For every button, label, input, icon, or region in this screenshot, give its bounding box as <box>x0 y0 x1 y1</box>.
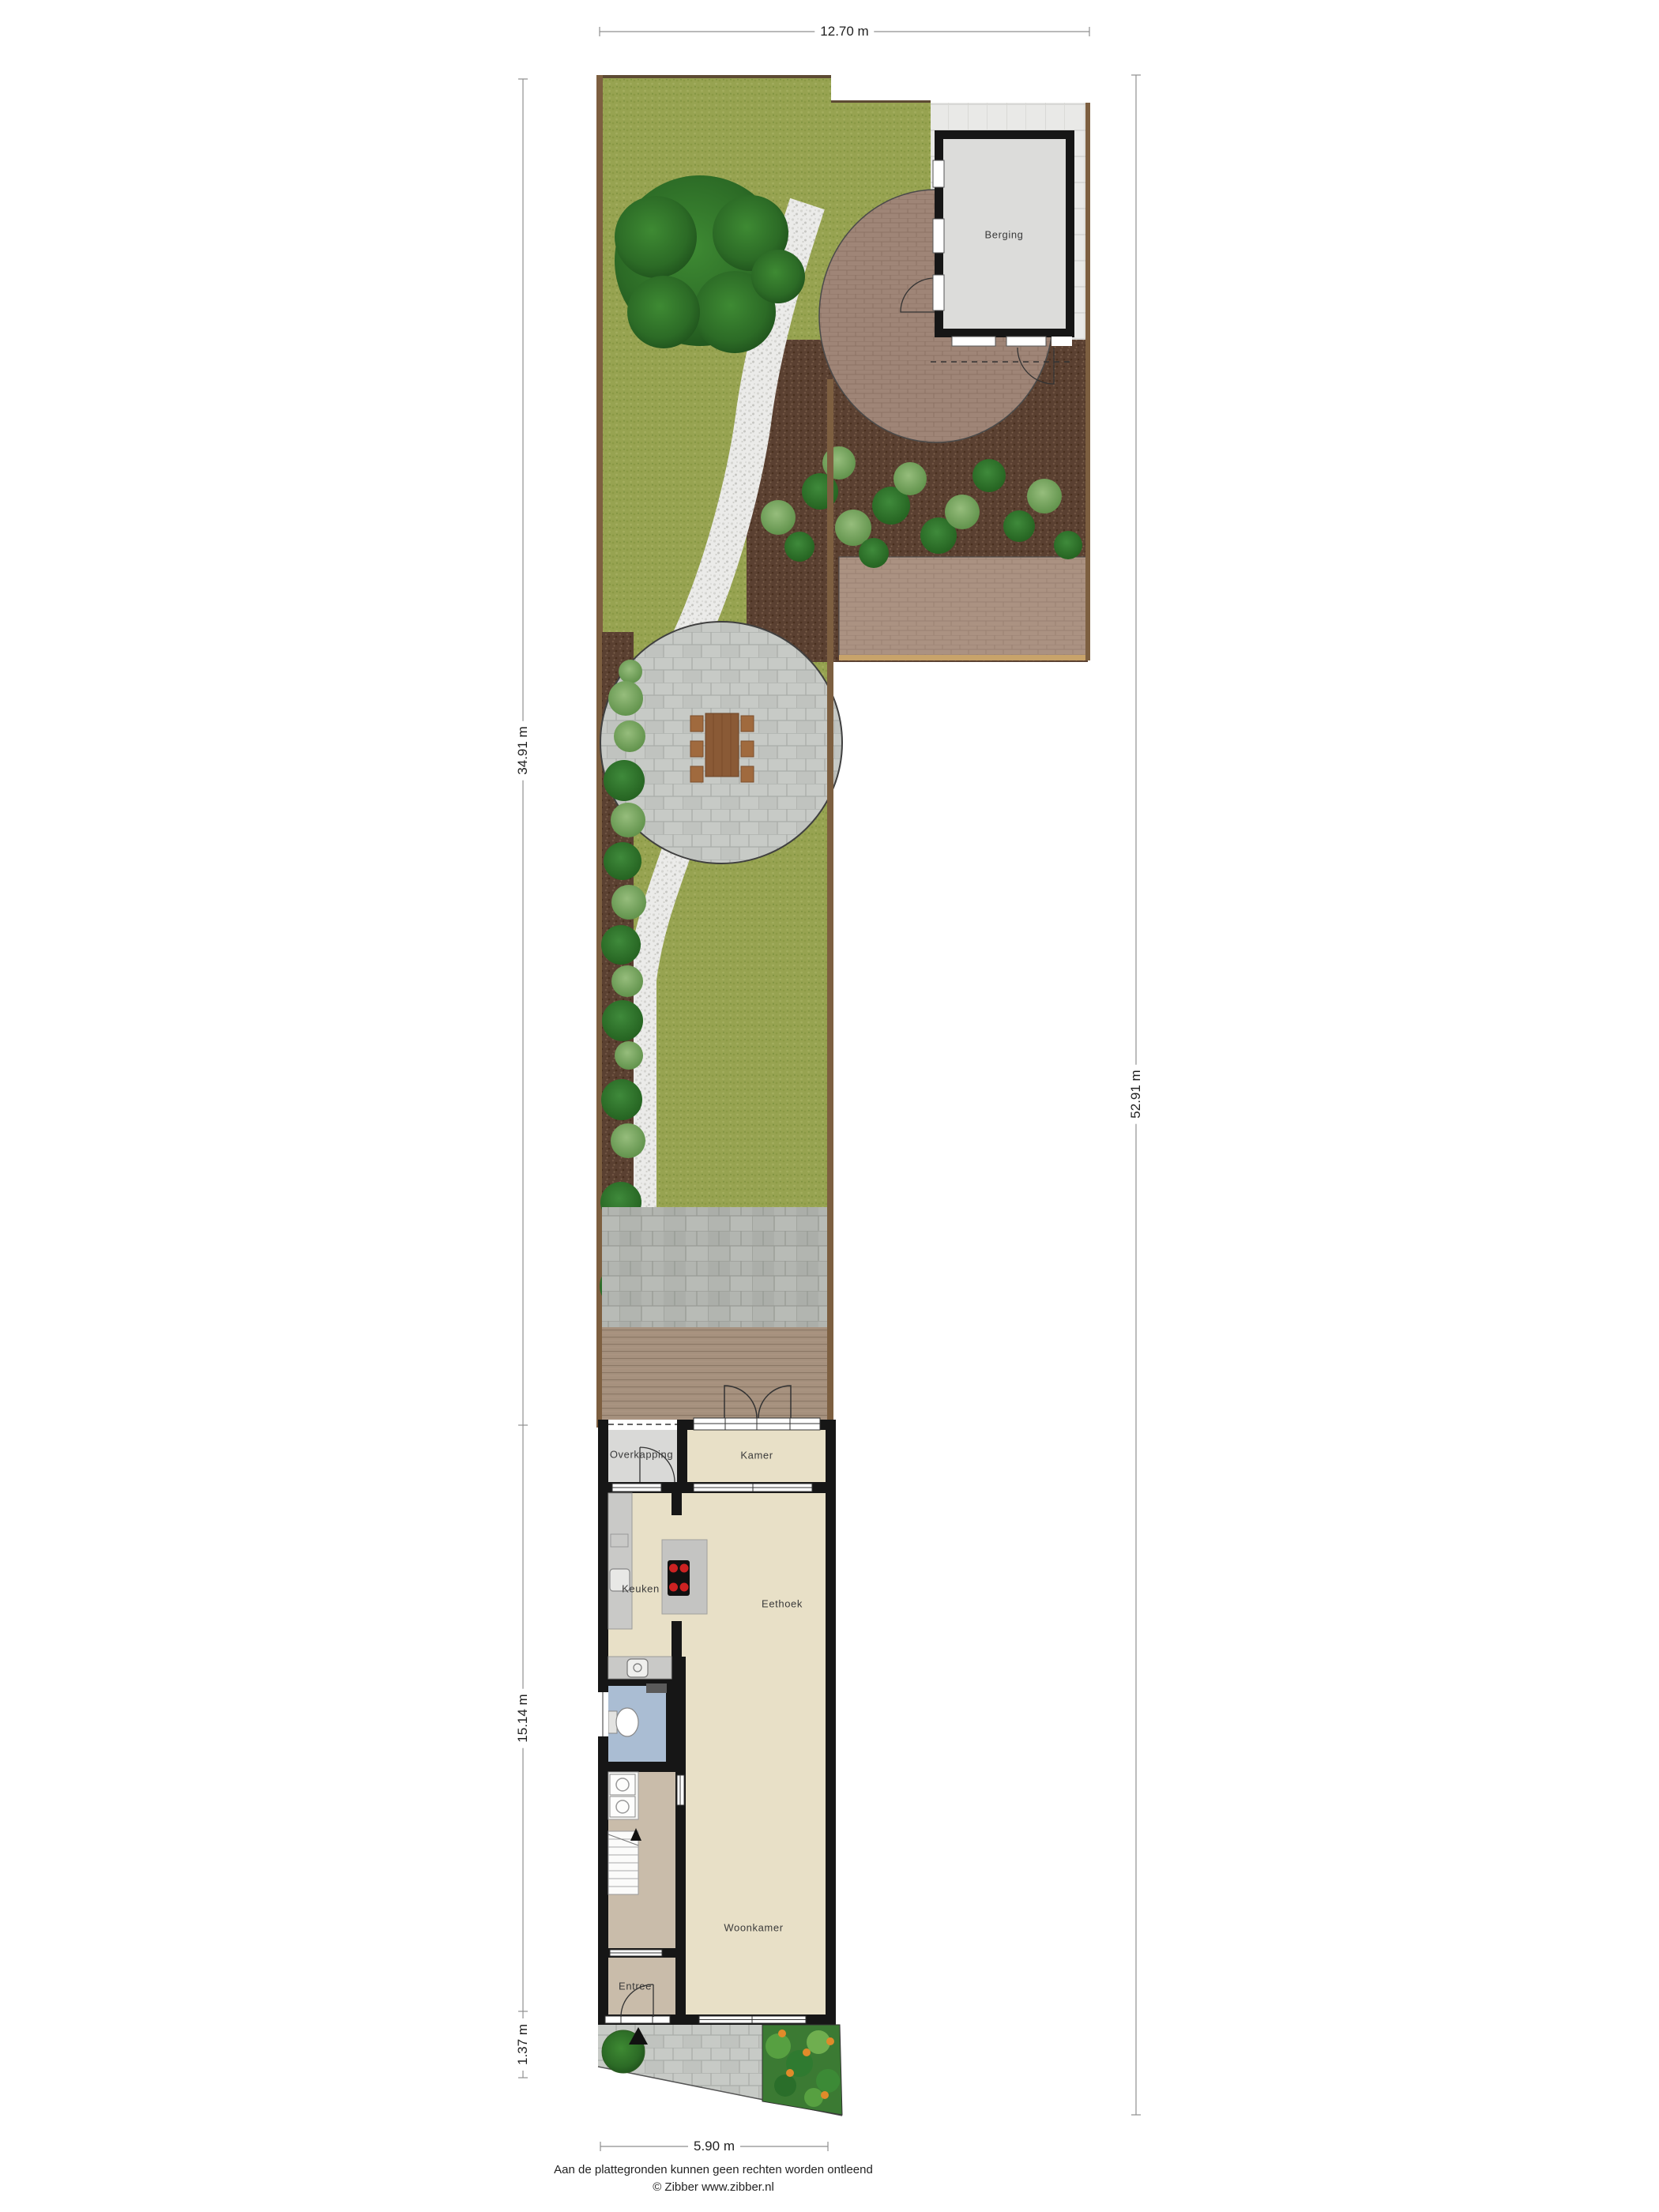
dimension-label-left-house: 15.14 m <box>514 1688 532 1747</box>
garden-dining-set <box>690 713 754 782</box>
radiator <box>646 1683 667 1693</box>
footer: Aan de plattegronden kunnen geen rechten… <box>554 2161 873 2196</box>
lower-counter <box>608 1657 671 1679</box>
site-plan-drawing <box>0 0 1659 2212</box>
footer-credit: © Zibber www.zibber.nl <box>554 2179 873 2196</box>
dimension-label-top: 12.70 m <box>814 23 874 40</box>
kitchen-island <box>662 1540 707 1614</box>
dimension-label-left-front: 1.37 m <box>514 2018 532 2071</box>
kitchen-counter <box>608 1493 632 1629</box>
floorplan-page: 12.70 m 34.91 m 15.14 m 1.37 m 52.91 m 5… <box>0 0 1659 2212</box>
room-label-berging: Berging <box>984 229 1023 241</box>
laundry-appliances <box>608 1772 638 1819</box>
room-label-keuken: Keuken <box>622 1583 660 1595</box>
brick-path <box>839 557 1088 656</box>
room-label-kamer: Kamer <box>740 1450 773 1461</box>
footer-disclaimer: Aan de plattegronden kunnen geen rechten… <box>554 2161 873 2179</box>
fence-right-strip <box>827 379 833 1420</box>
room-label-eethoek: Eethoek <box>762 1598 803 1610</box>
woonkamer-floor <box>686 1657 826 2014</box>
front-planter <box>762 2025 842 2115</box>
staircase <box>608 1828 641 1894</box>
room-label-overkapping: Overkapping <box>610 1449 673 1461</box>
wood-deck <box>602 1327 831 1420</box>
dimension-label-right: 52.91 m <box>1127 1064 1145 1123</box>
room-label-entree: Entree <box>619 1981 652 1992</box>
shed-bottom-windows <box>952 337 1072 346</box>
toilet <box>608 1708 638 1736</box>
room-label-woonkamer: Woonkamer <box>724 1922 783 1934</box>
dimension-label-left-garden: 34.91 m <box>514 720 532 780</box>
front-garden <box>598 2025 842 2116</box>
shed-left-windows <box>933 160 944 310</box>
dimension-label-bottom: 5.90 m <box>688 2138 740 2155</box>
fence-right-top <box>1085 103 1090 660</box>
keuken-eethoek-floor <box>608 1493 826 1657</box>
house <box>598 1418 836 2025</box>
terrace-pavers <box>602 1207 831 1327</box>
